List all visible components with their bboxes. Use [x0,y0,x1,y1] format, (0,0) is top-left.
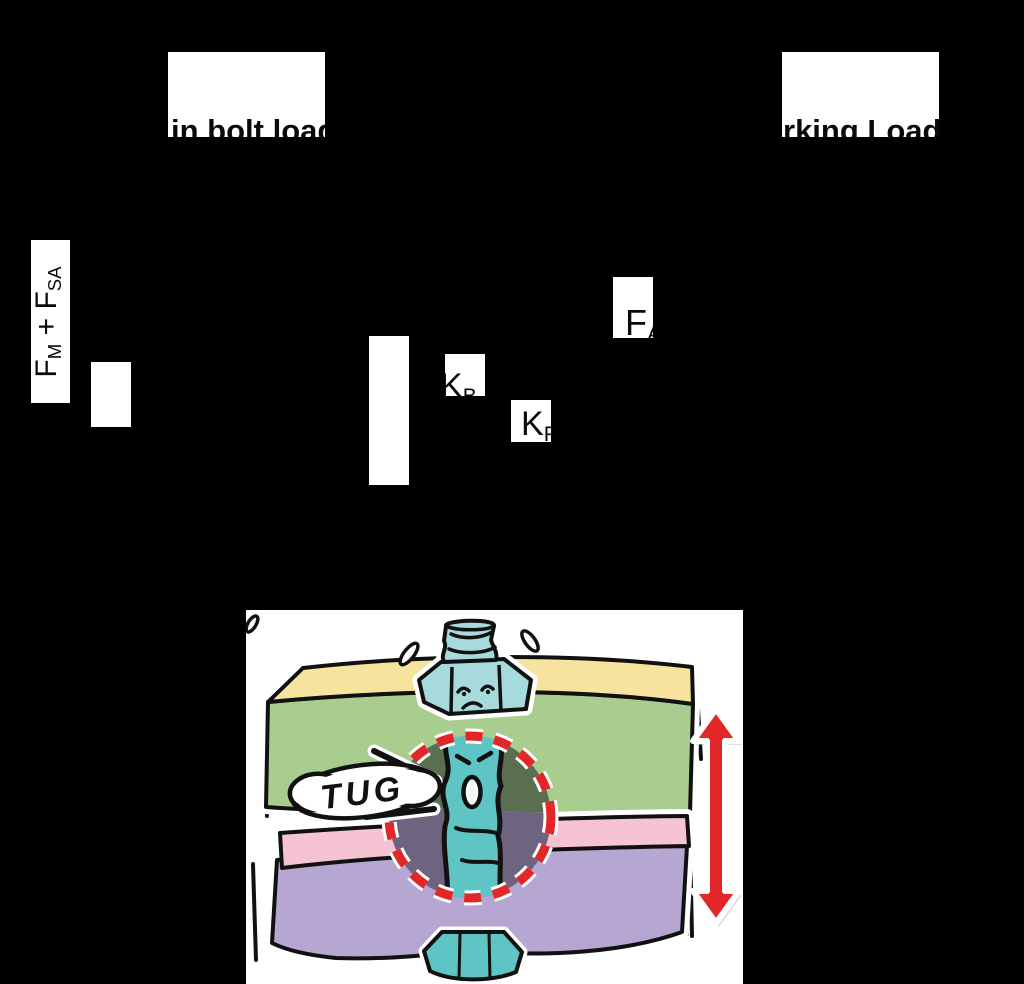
axis-label-fm-fsa: FM + FSA [31,266,69,377]
bolt-load-caption: in bolt load [171,115,325,137]
axis-label-strip: FM + FSA [31,240,70,403]
applied-force-fa-box: FA [613,277,653,338]
separation-arrow [693,709,742,927]
slide-canvas: in bolt load rking Load F FM + FSA KB KP… [0,0,1024,984]
stiffness-kp-box: KP [511,400,551,442]
kb-label: KB [445,369,477,396]
stiffness-kb-box: KB [445,354,485,396]
placeholder-bolt-load: in bolt load [168,52,325,137]
working-load-caption: rking Load F [783,115,939,137]
placeholder-working-load: rking Load F [782,52,939,137]
bolt-shank-face [443,728,502,902]
blank-box-tall [369,336,409,485]
bolted-joint-cartoon: TUG [246,610,743,984]
bottom-bolt-head [424,932,522,979]
blank-box-small [91,362,131,427]
kp-label: KP [521,407,551,442]
fa-label: FA [625,305,653,338]
